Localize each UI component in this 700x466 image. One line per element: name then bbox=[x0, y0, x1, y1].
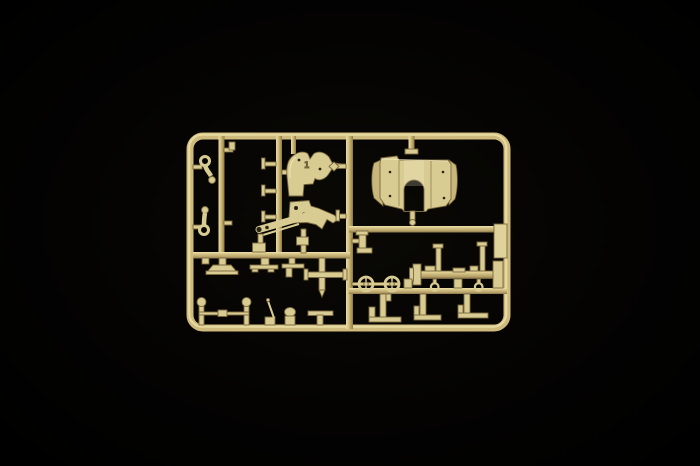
gun-shield-bracket bbox=[372, 149, 458, 226]
runner-horizontal-right bbox=[349, 226, 507, 233]
runner-horizontal-left bbox=[193, 252, 350, 259]
road-wheel-1 bbox=[359, 277, 373, 291]
gate-stub-cradle-top bbox=[291, 136, 296, 154]
runner-vertical-left bbox=[219, 136, 225, 255]
pivot-link-upper bbox=[193, 157, 216, 184]
runner-step-stubs bbox=[224, 142, 235, 225]
t-handle bbox=[308, 311, 333, 325]
tow-bar bbox=[197, 298, 251, 326]
step-bracket-1 bbox=[369, 294, 401, 322]
elbow-bracket bbox=[352, 231, 372, 253]
step-bracket-3 bbox=[458, 294, 488, 318]
molded-part-number: 1 bbox=[304, 161, 309, 171]
sprue-illustration: 1 bbox=[0, 0, 700, 466]
step-bracket-2 bbox=[414, 294, 441, 320]
cross-stake bbox=[304, 258, 347, 297]
side-plate bbox=[494, 224, 507, 258]
knob-part bbox=[285, 308, 296, 326]
sprue-runners bbox=[193, 136, 507, 329]
mounting-feet bbox=[202, 258, 304, 277]
road-wheel-2 bbox=[385, 277, 399, 291]
cradle-gate-stubs bbox=[262, 158, 290, 222]
sprue-photo: 1 bbox=[0, 0, 700, 466]
hand-lever bbox=[265, 298, 275, 325]
pivot-link-lower bbox=[193, 207, 209, 235]
gun-cradle-upper-bracket: 1 bbox=[287, 152, 346, 196]
runner-vertical-cradle bbox=[276, 136, 282, 255]
